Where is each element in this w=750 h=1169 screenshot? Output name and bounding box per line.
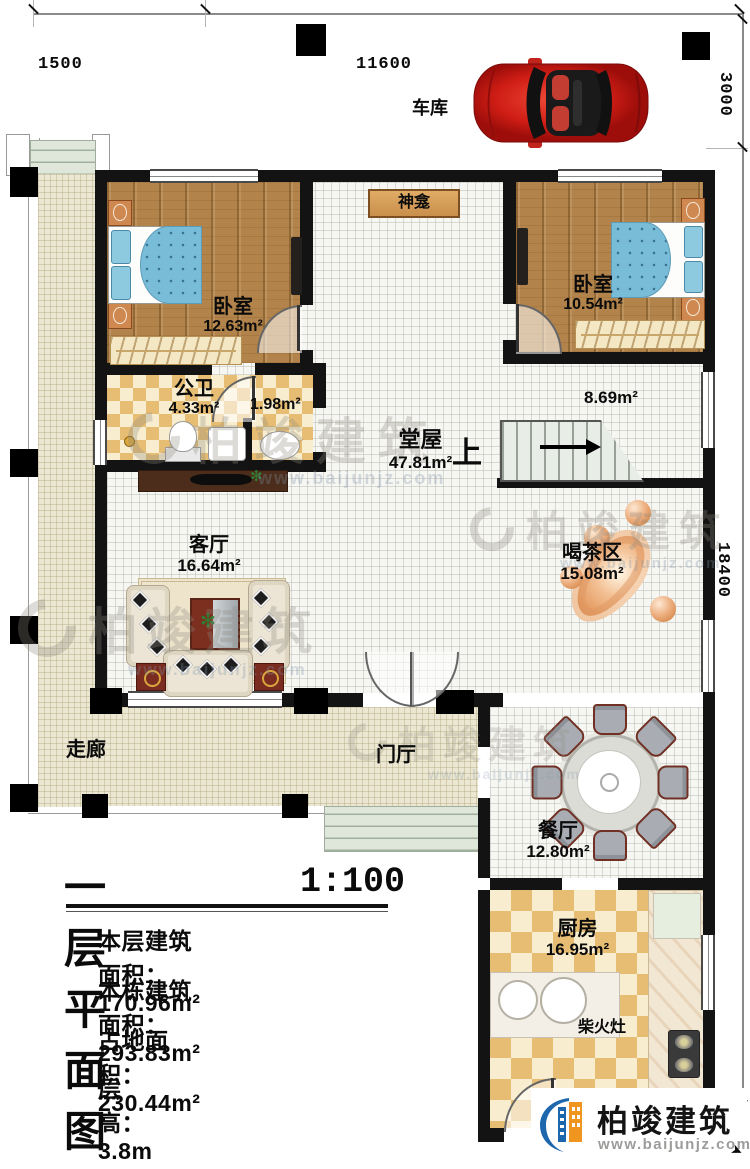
shrine-label: 神龛: [398, 194, 430, 211]
wall: [703, 448, 715, 620]
wall: [95, 170, 150, 182]
dim-18400: 18400: [713, 542, 732, 598]
column: [10, 449, 38, 477]
wood-stove-label: 柴火灶: [578, 1013, 626, 1037]
quilt: [140, 226, 202, 304]
shower-tray: [208, 427, 246, 461]
garage-label: 车库: [398, 98, 462, 118]
burner: [675, 1035, 693, 1050]
stair-arrow-head: [586, 439, 601, 455]
column: [296, 24, 326, 56]
column: [10, 167, 38, 197]
nightstand: [108, 200, 132, 226]
dim-guide: [33, 0, 34, 27]
plant-icon: ✻: [250, 467, 263, 485]
wall: [503, 182, 516, 304]
dim-guide: [205, 0, 206, 27]
tv: [291, 237, 302, 295]
bedroom-left-label: 卧室 12.63m²: [178, 296, 288, 336]
tv: [517, 228, 528, 285]
window: [558, 169, 662, 183]
wall: [478, 707, 490, 747]
dimension-line-right: [742, 14, 744, 1102]
column: [682, 32, 710, 60]
bedroom-right-label: 卧室 10.54m²: [538, 274, 648, 314]
bathroom-label: 公卫 4.33m²: [138, 378, 250, 418]
dining-chair: [532, 766, 563, 800]
foyer-steps: [324, 806, 480, 852]
dining-label: 餐厅 12.80m²: [502, 820, 614, 861]
shrine-cabinet: 神龛: [368, 189, 460, 218]
stair-arrow-line: [540, 445, 592, 449]
stairs-up-label: 上: [452, 428, 482, 472]
title-underline-thin: [66, 911, 388, 912]
wall: [95, 182, 107, 420]
wall: [490, 878, 562, 890]
window: [93, 420, 107, 465]
window: [701, 935, 715, 1010]
wall: [258, 170, 558, 182]
side-table: [254, 663, 284, 691]
foyer-label: 门厅: [376, 738, 416, 767]
dim-3000: 3000: [715, 72, 734, 117]
door-leaf: [297, 305, 300, 351]
nightstand: [681, 198, 705, 224]
entry-door-left-leaf: [365, 652, 414, 707]
entry-steps: [30, 140, 96, 176]
column: [82, 794, 108, 818]
living-label: 客厅 16.64m²: [155, 534, 263, 575]
wall: [662, 170, 715, 182]
pillow: [111, 266, 131, 300]
side-table: [136, 663, 166, 691]
pillow: [684, 261, 703, 293]
brand-name: 柏竣建筑: [597, 1096, 733, 1141]
burner: [675, 1058, 693, 1073]
plant-icon: ✻: [200, 610, 216, 633]
plan-scale: 1:100: [300, 862, 405, 902]
stat-floor-height: 层高：3.8m: [98, 1070, 152, 1165]
nightstand: [681, 295, 705, 321]
wall: [313, 363, 326, 408]
tea-stool: [650, 596, 676, 622]
dimension-line-top: [33, 13, 744, 15]
dining-chair: [593, 704, 627, 735]
window: [701, 620, 715, 692]
column: [90, 688, 122, 714]
dim-11600: 11600: [356, 55, 412, 74]
wall: [478, 890, 490, 1142]
title-underline: [66, 904, 388, 908]
stove-pot-circle: [498, 980, 538, 1020]
window: [150, 169, 258, 183]
fridge: [653, 893, 701, 939]
towel-ring: [124, 436, 135, 447]
brand-site: www.baijunjz.com: [598, 1136, 750, 1153]
tea-label: 喝茶区 15.08m²: [538, 542, 646, 583]
teapot: [600, 773, 619, 792]
column: [10, 784, 38, 812]
wall: [618, 878, 715, 890]
sink: [260, 431, 300, 460]
dining-chair: [658, 766, 689, 800]
window: [701, 372, 715, 448]
column: [294, 688, 328, 714]
wall: [503, 340, 516, 352]
brand-logo-block: 柏竣建筑 www.baijunjz.com: [531, 1088, 747, 1164]
brand-logo-icon: [535, 1092, 593, 1156]
wall: [703, 692, 715, 935]
vestibule-area-label: 1.98m²: [250, 396, 301, 414]
wall: [478, 798, 490, 878]
corridor-label: 走廊: [66, 733, 106, 762]
column: [10, 616, 38, 644]
floor-plan-canvas: 1500 11600 3000 18400 车库: [0, 0, 750, 1169]
car-top-view: [472, 58, 650, 148]
tea-stool: [625, 500, 651, 526]
wall: [478, 1128, 504, 1142]
nightstand: [108, 303, 132, 329]
door-leaf: [516, 304, 519, 352]
toilet-bowl: [169, 421, 197, 452]
pillow: [684, 226, 703, 258]
kitchen-label: 厨房 16.95m²: [520, 918, 635, 959]
wardrobe: [110, 336, 242, 365]
stair-zone-area-label: 8.69m²: [584, 388, 638, 408]
wall: [95, 465, 107, 707]
wall: [255, 363, 313, 375]
column: [282, 794, 308, 818]
dim-1500: 1500: [38, 55, 83, 74]
gas-stove: [668, 1030, 700, 1078]
wardrobe: [575, 320, 705, 349]
tv-screen: [190, 474, 252, 485]
pillow: [111, 230, 131, 264]
